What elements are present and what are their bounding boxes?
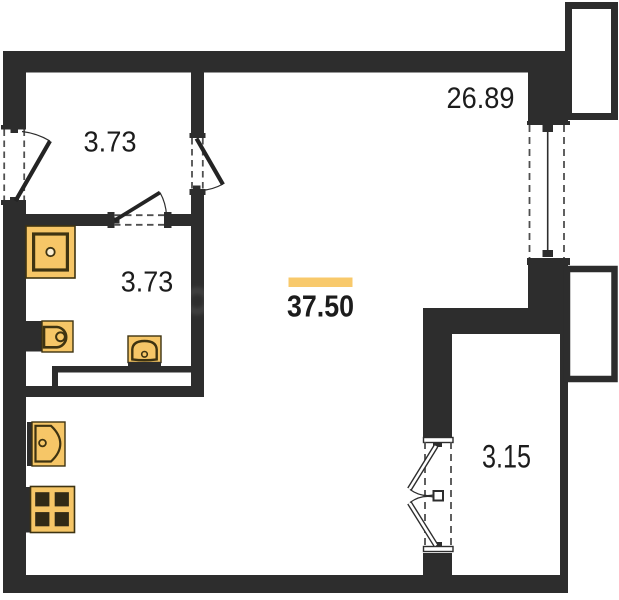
svg-text:37.50: 37.50 [287, 289, 354, 324]
svg-text:3.73: 3.73 [121, 267, 174, 299]
svg-text:26.89: 26.89 [447, 82, 515, 115]
svg-text:3.15: 3.15 [482, 439, 531, 475]
svg-text:3.73: 3.73 [84, 127, 137, 159]
